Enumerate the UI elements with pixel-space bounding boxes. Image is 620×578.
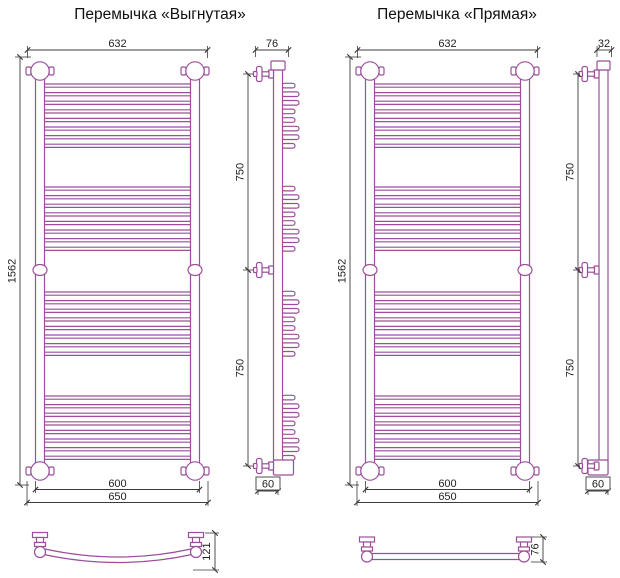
curved-dim-overall-width: 650 bbox=[108, 491, 126, 503]
curved-dim-width-top: 632 bbox=[108, 38, 126, 50]
straight-side-view bbox=[579, 61, 610, 475]
straight-dim-height: 1562 bbox=[337, 259, 349, 283]
technical-drawing-page: Перемычка «Выгнутая» 632 1562 600 650 bbox=[0, 0, 620, 578]
straight-dim-lower-span: 750 bbox=[565, 359, 577, 377]
curved-dim-upper-span: 750 bbox=[235, 163, 247, 181]
towel-rail-drawing: Перемычка «Выгнутая» 632 1562 600 650 bbox=[0, 0, 620, 578]
straight-dim-bracket-offset: 60 bbox=[592, 479, 604, 491]
curved-title: Перемычка «Выгнутая» bbox=[74, 6, 246, 23]
straight-front-view bbox=[356, 62, 539, 480]
curved-dim-depth-top: 76 bbox=[266, 38, 278, 50]
curved-dim-mount-span: 600 bbox=[108, 478, 126, 490]
straight-dim-mount-span: 600 bbox=[438, 478, 456, 490]
straight-dim-upper-span: 750 bbox=[565, 163, 577, 181]
curved-dim-bracket-offset: 60 bbox=[262, 479, 274, 491]
curved-plan-view: 121 bbox=[33, 533, 220, 571]
curved-dim-height: 1562 bbox=[7, 259, 19, 283]
straight-dim-overall-width: 650 bbox=[438, 491, 456, 503]
curved-side-view bbox=[254, 61, 300, 475]
curved-assembly: Перемычка «Выгнутая» 632 1562 600 650 bbox=[7, 6, 300, 570]
curved-front-view bbox=[26, 62, 209, 480]
straight-dim-depth-top: 32 bbox=[598, 38, 610, 50]
straight-dim-plan-depth: 76 bbox=[530, 543, 542, 555]
straight-title: Перемычка «Прямая» bbox=[377, 6, 537, 23]
straight-plan-view: 76 bbox=[360, 537, 548, 562]
curved-dim-plan-depth: 121 bbox=[201, 542, 213, 560]
straight-dim-width-top: 632 bbox=[438, 38, 456, 50]
curved-dim-lower-span: 750 bbox=[235, 359, 247, 377]
straight-assembly: Перемычка «Прямая» 632 1562 600 650 bbox=[337, 6, 612, 562]
